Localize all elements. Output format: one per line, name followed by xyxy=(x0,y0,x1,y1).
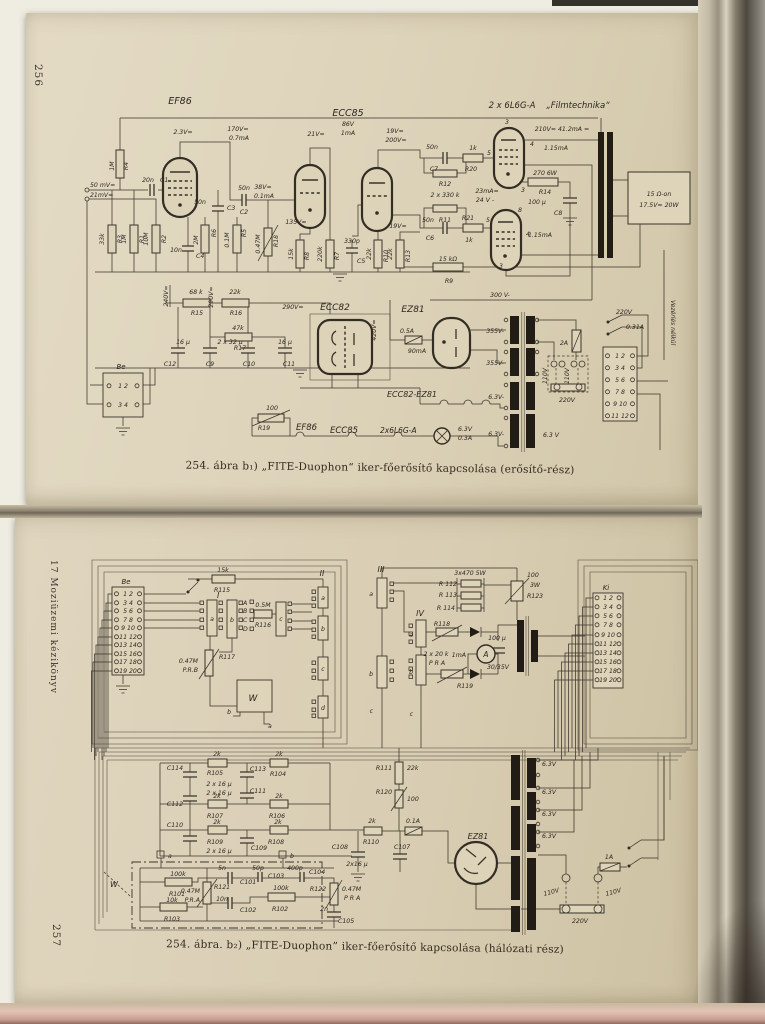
scanned-book-spread: { "colors": {"paper":"#dcd2b8","ink":"#3… xyxy=(0,0,765,1024)
book-page-257 xyxy=(15,517,702,1005)
scan-bottom-band xyxy=(0,1003,765,1024)
page-number-257: 257 xyxy=(50,924,62,947)
book-fore-edge xyxy=(698,0,765,1024)
margin-running-title: 17 Moziüzemi kézikönyv xyxy=(48,560,58,694)
page-seam xyxy=(0,505,702,518)
page-number-256: 256 xyxy=(32,64,44,87)
book-page-256 xyxy=(26,13,702,505)
